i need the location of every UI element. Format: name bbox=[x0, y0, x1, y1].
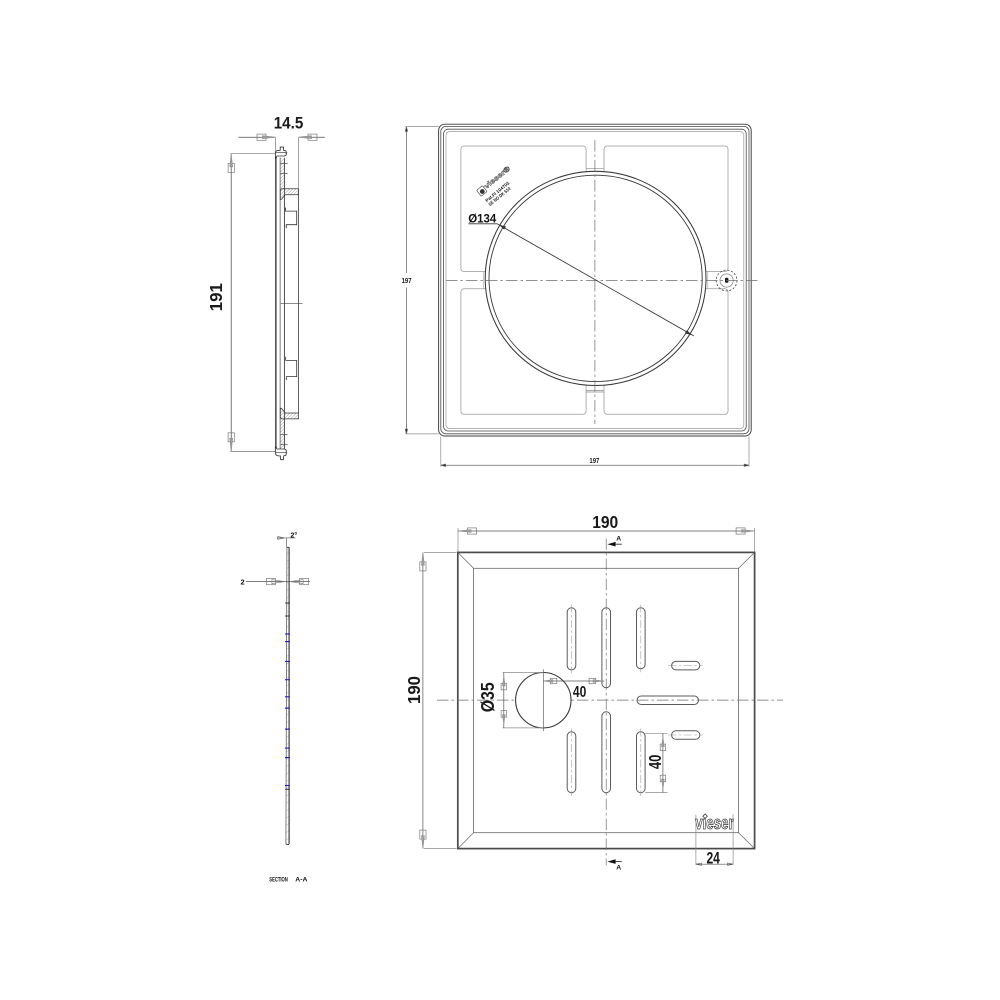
svg-text:Ø134: Ø134 bbox=[468, 214, 497, 226]
svg-text:vıeser: vıeser bbox=[695, 813, 734, 833]
svg-text:191: 191 bbox=[206, 283, 226, 311]
svg-text:197: 197 bbox=[402, 276, 412, 285]
svg-text:190: 190 bbox=[404, 676, 424, 704]
svg-text:Ø35: Ø35 bbox=[477, 682, 498, 712]
svg-text:40: 40 bbox=[573, 684, 586, 701]
svg-text:A: A bbox=[616, 535, 621, 542]
svg-text:24: 24 bbox=[706, 849, 720, 867]
svg-text:14.5: 14.5 bbox=[274, 114, 304, 133]
svg-text:SECTION: SECTION bbox=[269, 876, 288, 883]
svg-text:2: 2 bbox=[241, 578, 245, 587]
svg-text:2°: 2° bbox=[290, 531, 297, 540]
svg-text:A: A bbox=[616, 864, 621, 871]
svg-text:190: 190 bbox=[592, 512, 618, 532]
svg-text:40: 40 bbox=[645, 755, 665, 770]
svg-text:A-A: A-A bbox=[295, 876, 307, 883]
svg-text:197: 197 bbox=[589, 456, 599, 465]
